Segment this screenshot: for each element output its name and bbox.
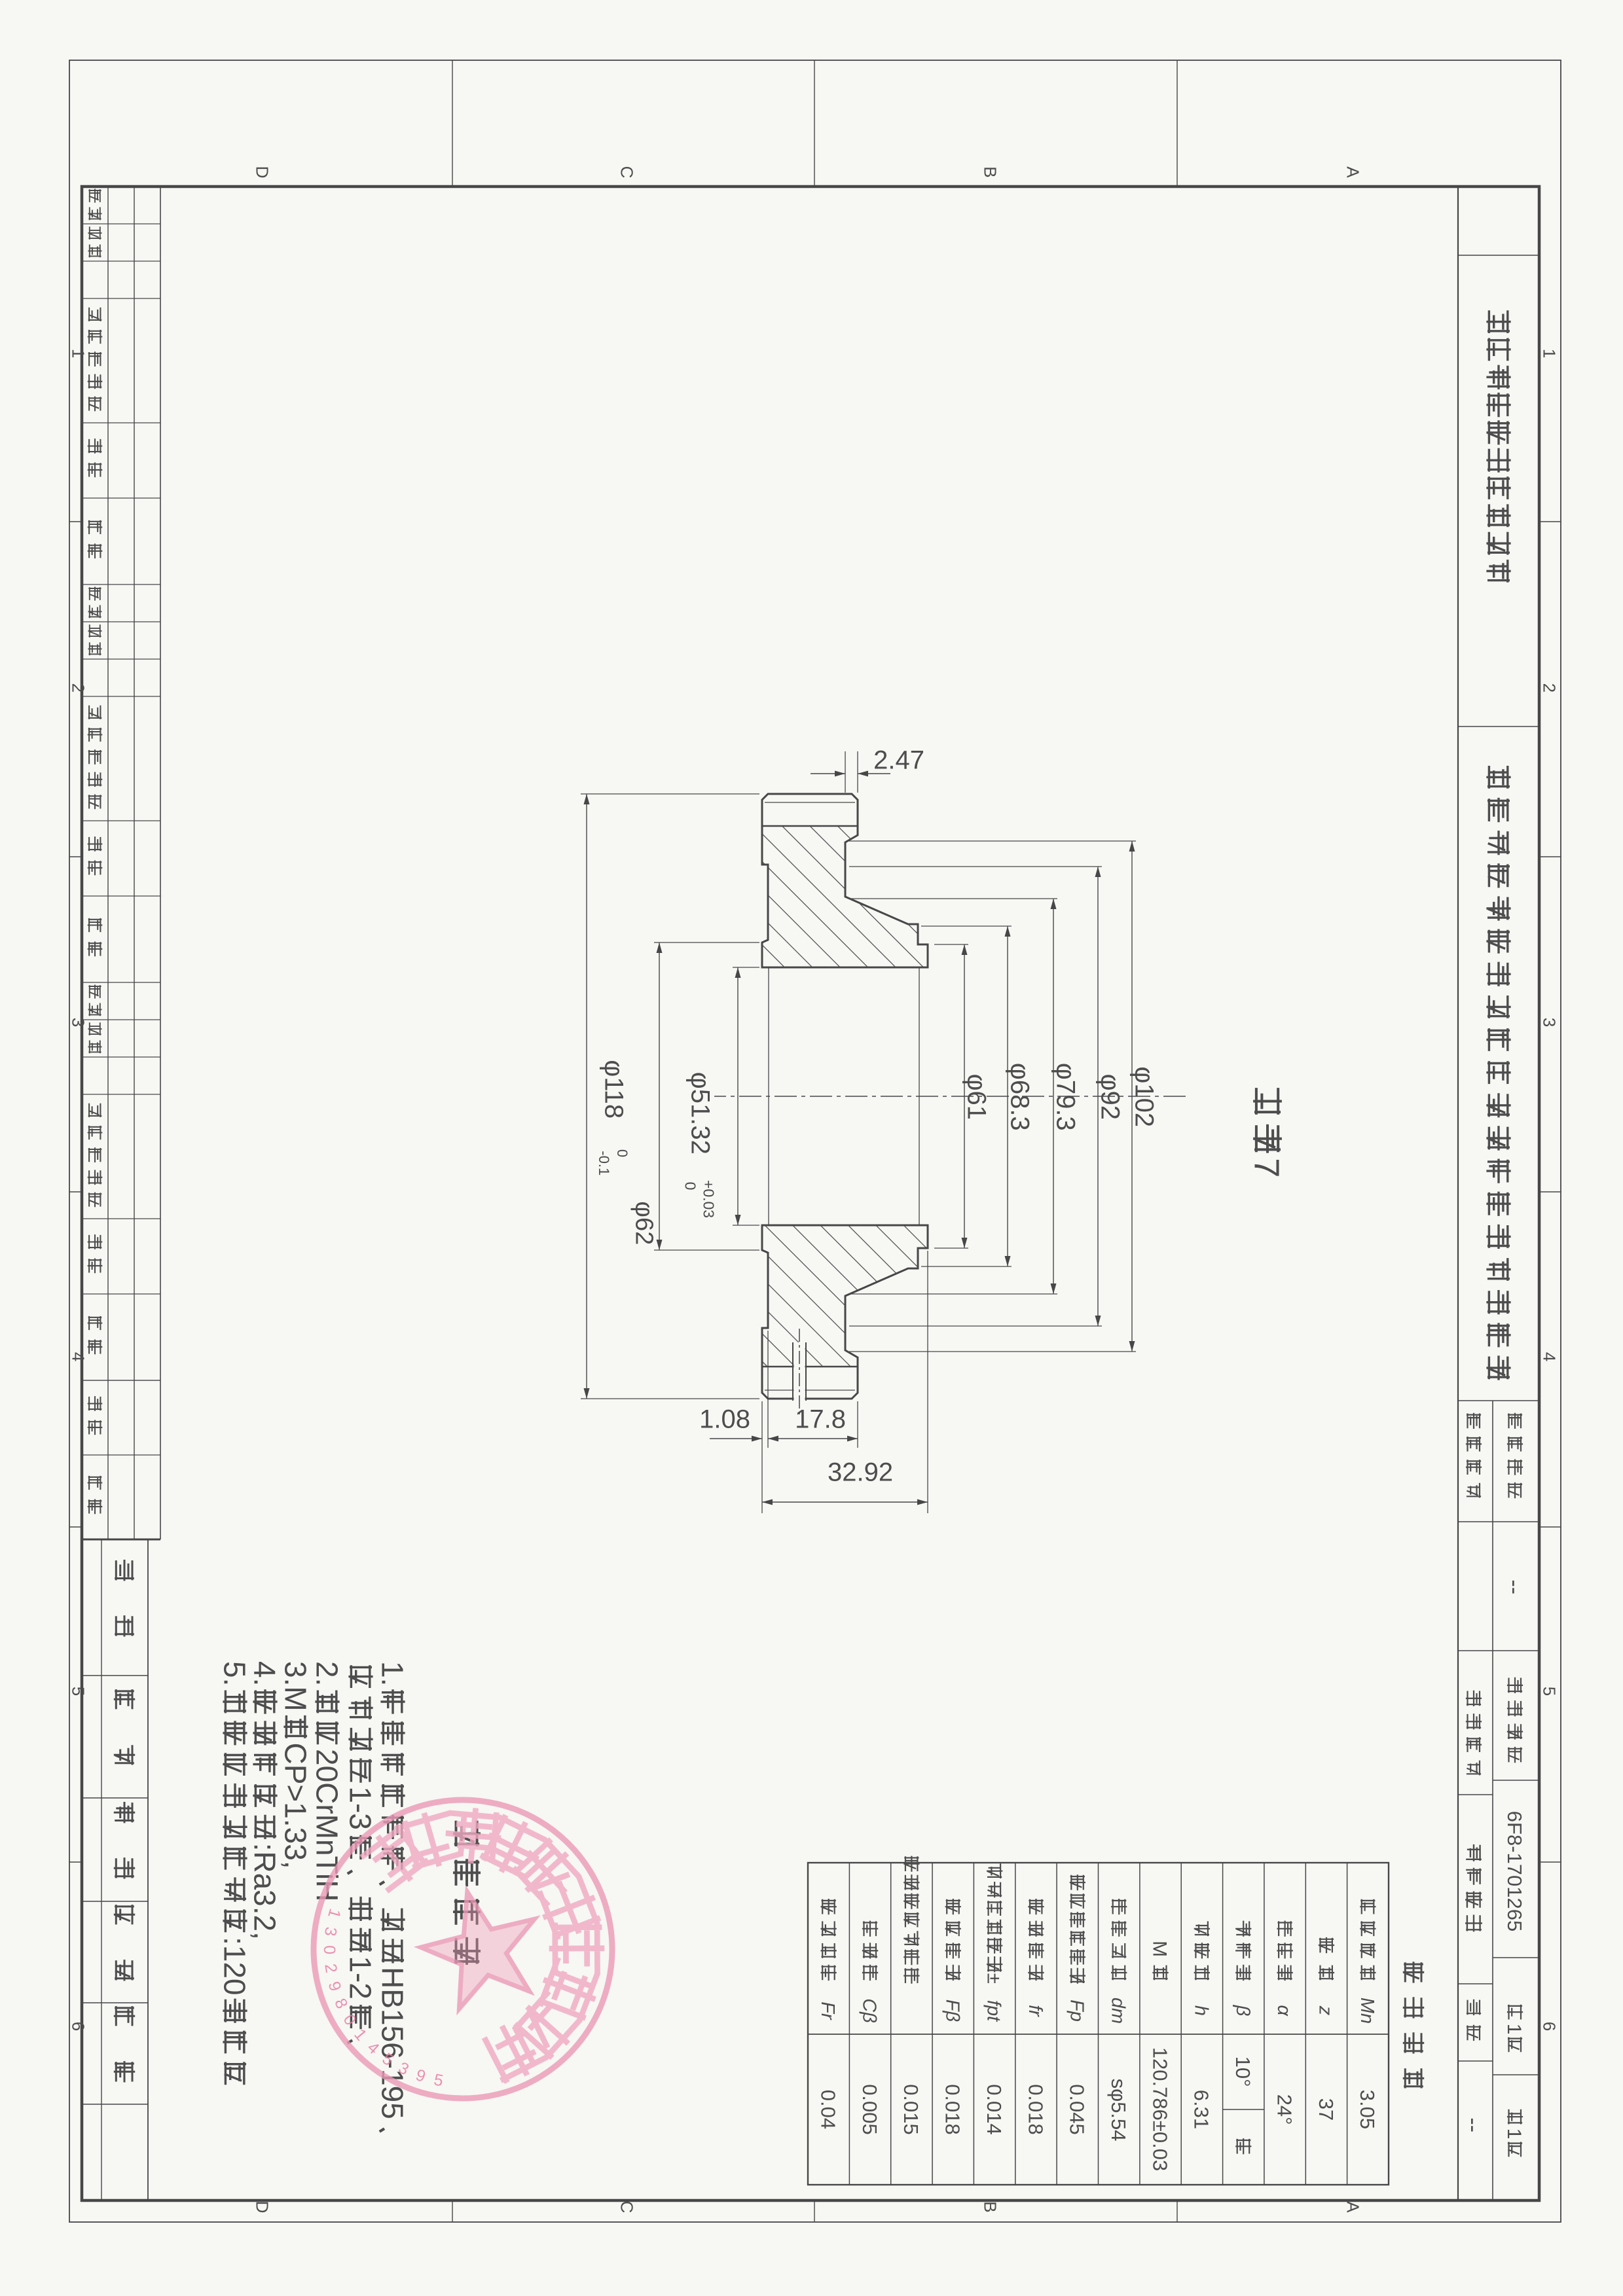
svg-text:1-3: 1-3 xyxy=(343,1786,377,1829)
svg-text:dm: dm xyxy=(1108,1998,1129,2024)
svg-text:φ61: φ61 xyxy=(962,1074,991,1120)
svg-text:--: -- xyxy=(1502,1579,1527,1594)
svg-text:0: 0 xyxy=(614,1149,630,1157)
svg-text:sφ5.54: sφ5.54 xyxy=(1107,2079,1130,2142)
svg-text:--: -- xyxy=(1461,2117,1486,2132)
svg-text:Fp: Fp xyxy=(1066,2000,1087,2022)
svg-text:120.786±0.03: 120.786±0.03 xyxy=(1148,2047,1171,2171)
svg-text::120: :120 xyxy=(217,1937,251,1996)
svg-text:φ92: φ92 xyxy=(1096,1074,1125,1120)
svg-text:10°: 10° xyxy=(1231,2056,1254,2087)
svg-text:0.018: 0.018 xyxy=(941,2084,964,2135)
svg-text:CP>1.33,: CP>1.33, xyxy=(278,1743,312,1869)
svg-text:17.8: 17.8 xyxy=(795,1405,846,1433)
svg-text:3: 3 xyxy=(69,1018,88,1027)
svg-text:1: 1 xyxy=(69,349,88,358)
svg-text:4: 4 xyxy=(1540,1352,1559,1361)
svg-text:0: 0 xyxy=(320,1945,338,1954)
svg-text:0: 0 xyxy=(682,1182,699,1191)
svg-text:fpt: fpt xyxy=(983,2000,1004,2022)
svg-text:6: 6 xyxy=(69,2022,88,2031)
svg-text:B: B xyxy=(981,2201,1000,2212)
svg-text:2: 2 xyxy=(1540,683,1559,692)
svg-text:±: ± xyxy=(983,1973,1004,1984)
svg-text:φ102: φ102 xyxy=(1130,1066,1159,1127)
svg-text:2.47: 2.47 xyxy=(873,745,924,774)
svg-text:0.005: 0.005 xyxy=(858,2084,881,2135)
svg-text:6.31: 6.31 xyxy=(1190,2090,1213,2129)
svg-text:5.: 5. xyxy=(217,1661,251,1686)
svg-text:Mn: Mn xyxy=(1357,1998,1377,2024)
svg-text:Cβ: Cβ xyxy=(859,1998,880,2023)
svg-text:fr: fr xyxy=(1025,2005,1046,2017)
svg-text:φ51.32: φ51.32 xyxy=(686,1072,715,1155)
svg-text:1: 1 xyxy=(1503,2024,1525,2035)
svg-text:M: M xyxy=(1149,1941,1171,1957)
svg-text:β: β xyxy=(1232,2005,1253,2017)
svg-text:7: 7 xyxy=(1247,1158,1286,1177)
svg-text:3.05: 3.05 xyxy=(1356,2090,1379,2129)
svg-text:A: A xyxy=(1343,2201,1363,2213)
svg-text:4: 4 xyxy=(69,1352,88,1361)
svg-text:0.045: 0.045 xyxy=(1066,2084,1089,2135)
svg-text:32.92: 32.92 xyxy=(828,1458,893,1486)
svg-text:1.: 1. xyxy=(375,1661,409,1686)
svg-text:0.018: 0.018 xyxy=(1024,2084,1047,2135)
svg-text:1: 1 xyxy=(1540,349,1559,358)
svg-text:3.M: 3.M xyxy=(278,1661,312,1712)
svg-text:C: C xyxy=(617,2201,637,2214)
svg-text:-0.1: -0.1 xyxy=(596,1151,612,1175)
svg-text:24°: 24° xyxy=(1273,2094,1296,2125)
svg-text:0.04: 0.04 xyxy=(817,2090,840,2129)
svg-text:0.015: 0.015 xyxy=(900,2084,922,2135)
svg-text:1: 1 xyxy=(1503,2128,1525,2140)
svg-text:z: z xyxy=(1315,2005,1336,2016)
svg-text:D: D xyxy=(253,2201,272,2214)
svg-text:6F8-1701265: 6F8-1701265 xyxy=(1503,1811,1526,1931)
svg-text:5: 5 xyxy=(1540,1687,1559,1696)
svg-text:3: 3 xyxy=(1540,1018,1559,1027)
svg-text:+0.03: +0.03 xyxy=(701,1180,718,1218)
svg-text:φ62: φ62 xyxy=(630,1201,657,1245)
svg-text:φ118: φ118 xyxy=(600,1060,629,1119)
svg-text:6: 6 xyxy=(1540,2022,1559,2031)
svg-text:1-2: 1-2 xyxy=(343,1956,377,1999)
svg-text:5: 5 xyxy=(69,1687,88,1696)
svg-text:A: A xyxy=(1343,166,1363,178)
svg-text:1.08: 1.08 xyxy=(699,1405,750,1433)
svg-text:4.: 4. xyxy=(247,1661,282,1686)
svg-text:h: h xyxy=(1191,2005,1212,2016)
svg-text:2.: 2. xyxy=(310,1661,344,1686)
svg-text:D: D xyxy=(253,166,272,179)
svg-text::Ra3.2,: :Ra3.2, xyxy=(247,1843,282,1940)
svg-text:0.014: 0.014 xyxy=(983,2084,1006,2135)
svg-text:2: 2 xyxy=(69,683,88,692)
svg-text:φ68.3: φ68.3 xyxy=(1006,1063,1034,1131)
svg-text:Fr: Fr xyxy=(817,2001,838,2020)
svg-text:φ79.3: φ79.3 xyxy=(1051,1063,1080,1131)
svg-text:37: 37 xyxy=(1315,2098,1338,2121)
svg-text:Fβ: Fβ xyxy=(941,2000,962,2022)
svg-text:α: α xyxy=(1273,2005,1294,2017)
svg-text:C: C xyxy=(617,166,637,179)
svg-text:B: B xyxy=(981,166,1000,177)
svg-text:20CrMnTiH: 20CrMnTiH xyxy=(310,1749,344,1901)
